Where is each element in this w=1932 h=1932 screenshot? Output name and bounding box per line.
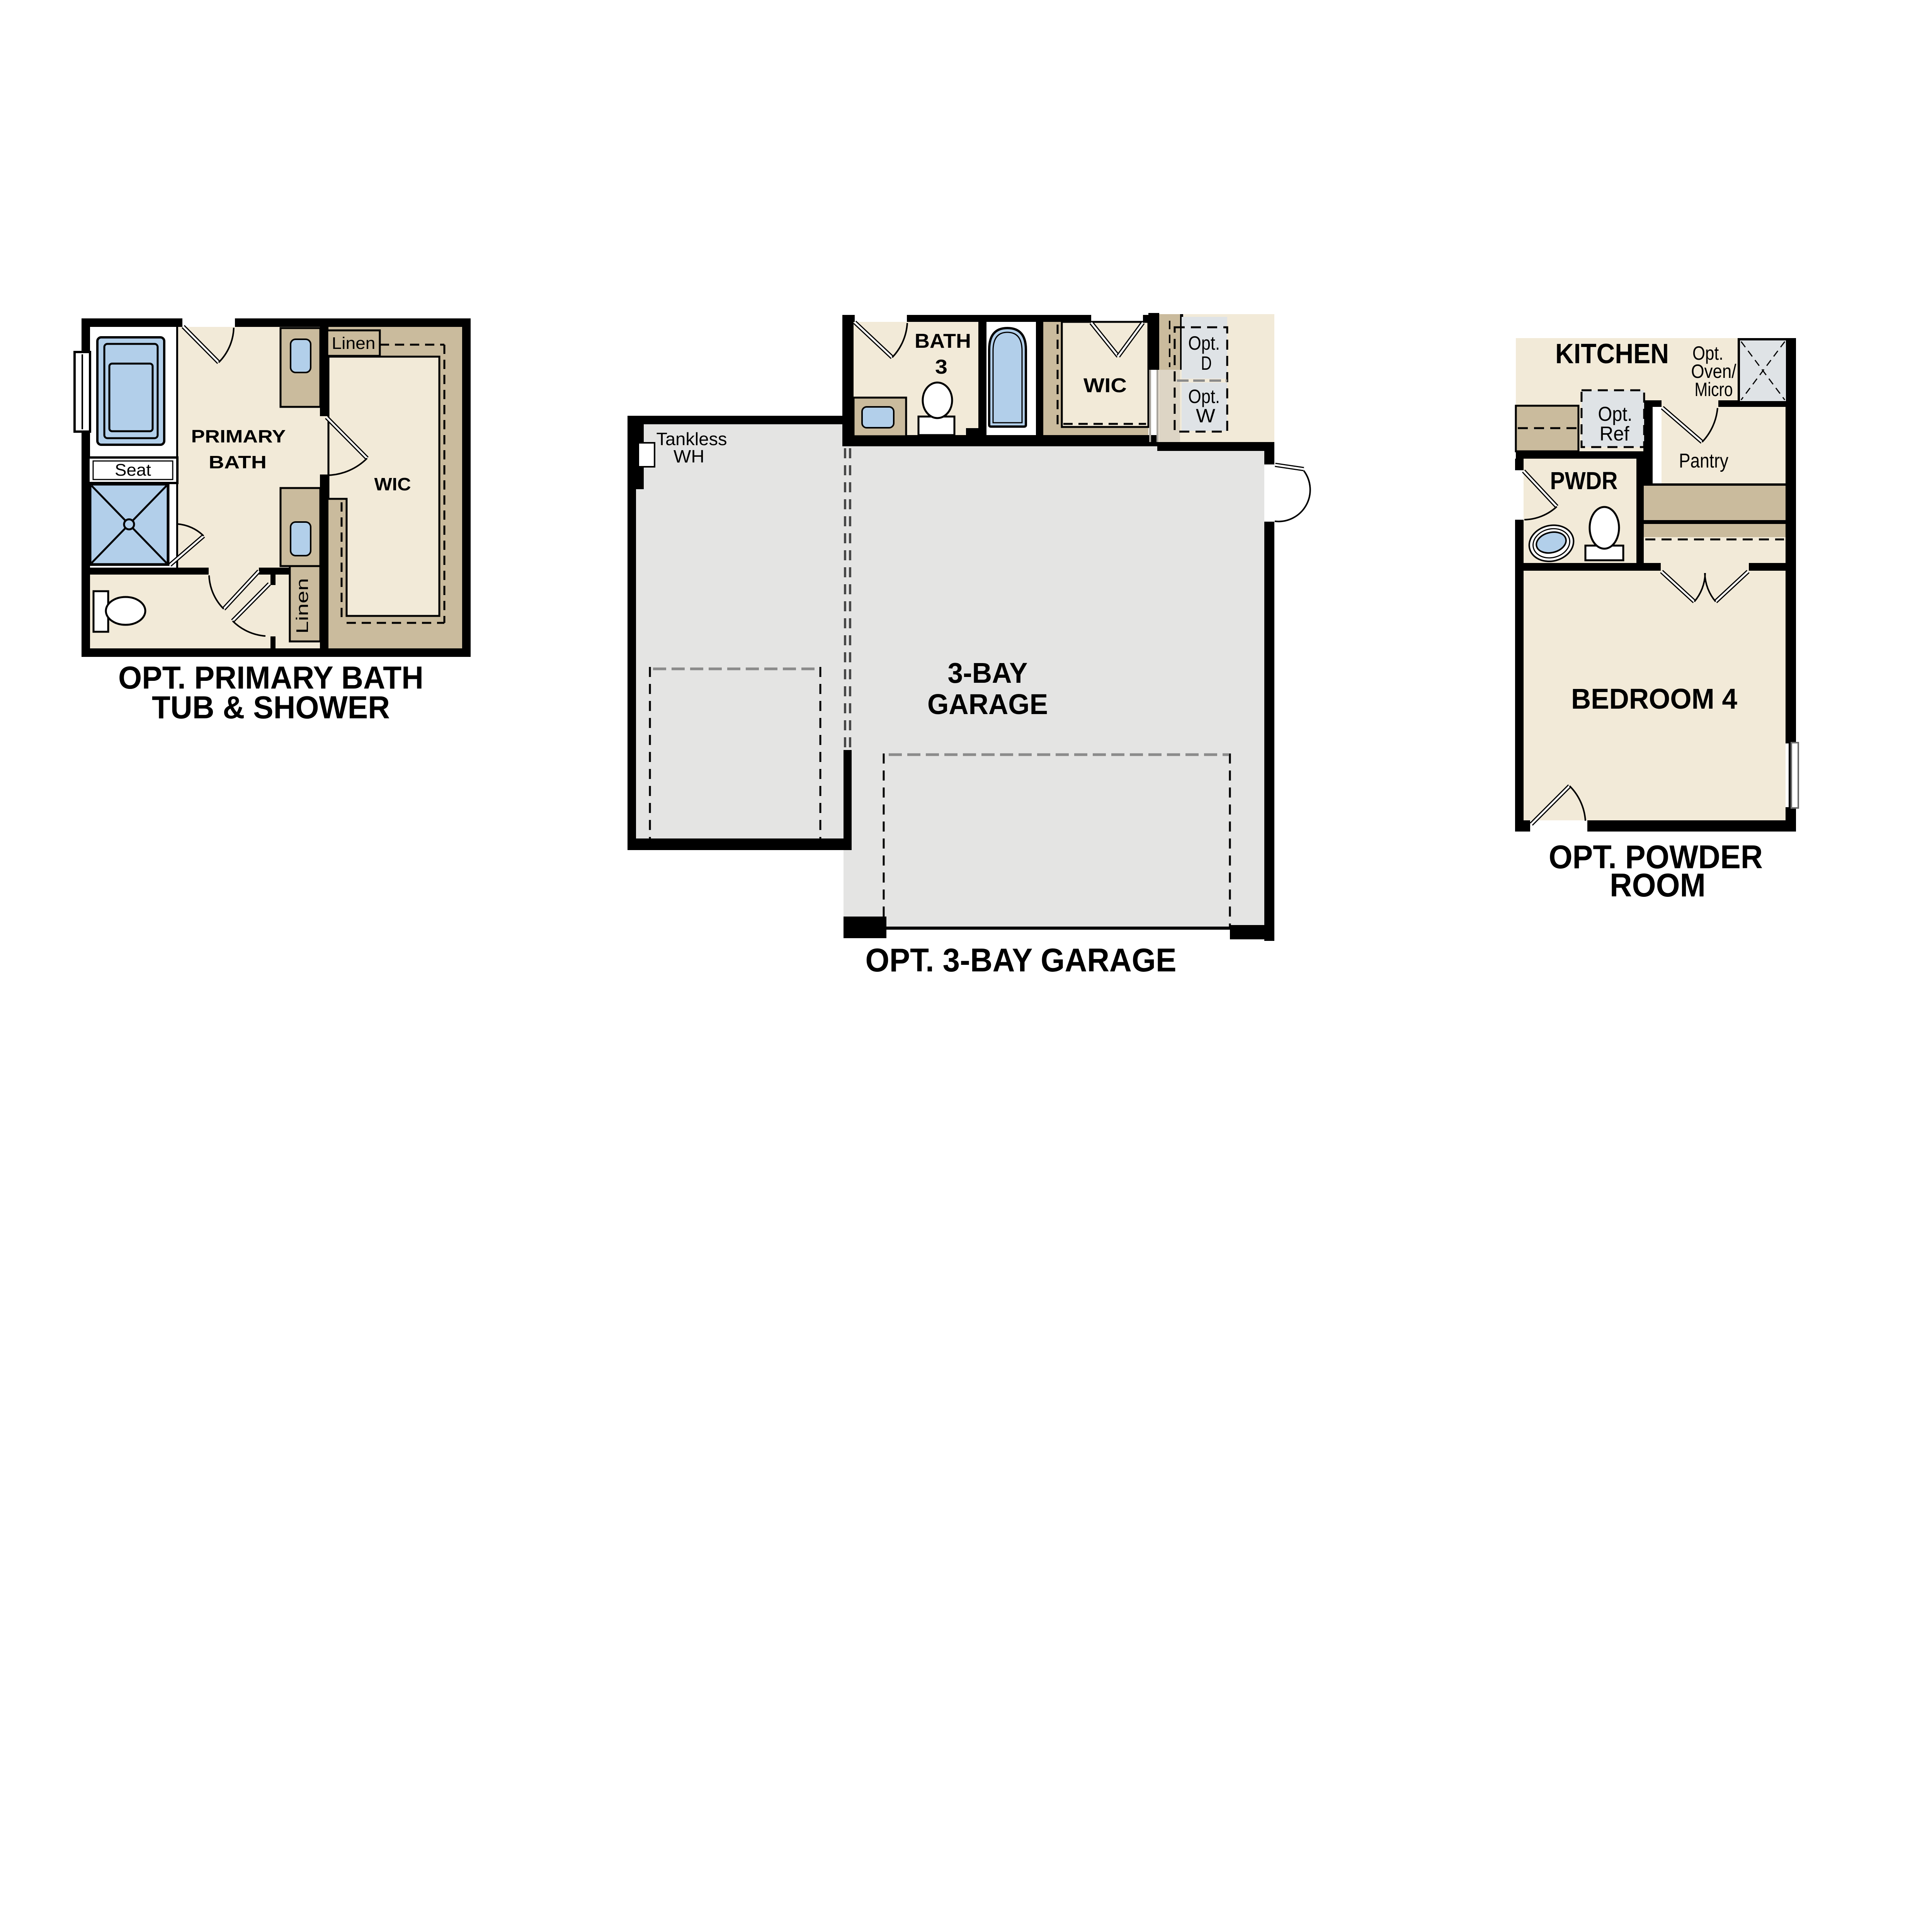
svg-text:Linen: Linen — [293, 578, 312, 634]
svg-text:OPT. 3-BAY GARAGE: OPT. 3-BAY GARAGE — [866, 942, 1177, 979]
svg-text:Opt.: Opt. — [1188, 332, 1220, 354]
svg-text:3: 3 — [935, 356, 947, 378]
svg-text:Opt.: Opt. — [1188, 386, 1220, 407]
svg-text:Linen: Linen — [332, 334, 376, 353]
svg-text:WIC: WIC — [374, 474, 411, 494]
svg-text:W: W — [1196, 405, 1216, 427]
svg-text:GARAGE: GARAGE — [927, 688, 1048, 720]
svg-text:Micro: Micro — [1695, 379, 1733, 400]
svg-text:BATH: BATH — [915, 330, 971, 352]
svg-text:ROOM: ROOM — [1610, 867, 1706, 904]
svg-text:BATH: BATH — [209, 452, 267, 472]
svg-text:PWDR: PWDR — [1550, 467, 1618, 495]
svg-text:Seat: Seat — [115, 461, 151, 480]
svg-text:3-BAY: 3-BAY — [948, 657, 1028, 689]
svg-text:Pantry: Pantry — [1679, 450, 1728, 472]
svg-text:Ref: Ref — [1600, 423, 1630, 445]
svg-text:WH: WH — [673, 446, 704, 466]
svg-text:KITCHEN: KITCHEN — [1555, 338, 1669, 369]
svg-text:TUB & SHOWER: TUB & SHOWER — [152, 689, 390, 725]
svg-text:BEDROOM 4: BEDROOM 4 — [1571, 683, 1737, 715]
svg-text:WIC: WIC — [1083, 374, 1127, 397]
svg-text:PRIMARY: PRIMARY — [191, 426, 286, 446]
svg-text:Opt.: Opt. — [1598, 403, 1633, 425]
svg-text:D: D — [1201, 352, 1212, 374]
